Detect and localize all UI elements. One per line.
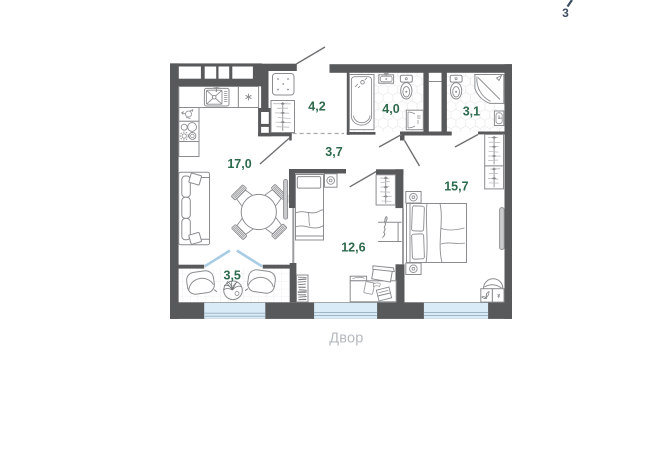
svg-text:3,1: 3,1 bbox=[463, 104, 480, 118]
svg-text:3,7: 3,7 bbox=[325, 145, 342, 159]
svg-text:12,6: 12,6 bbox=[341, 241, 365, 255]
svg-text:17,0: 17,0 bbox=[227, 157, 251, 171]
svg-text:4,0: 4,0 bbox=[382, 102, 399, 116]
svg-text:3,5: 3,5 bbox=[224, 269, 241, 283]
svg-text:3: 3 bbox=[562, 6, 569, 20]
svg-text:4,2: 4,2 bbox=[308, 100, 325, 114]
svg-text:15,7: 15,7 bbox=[444, 179, 468, 193]
svg-text:Двор: Двор bbox=[329, 331, 363, 347]
